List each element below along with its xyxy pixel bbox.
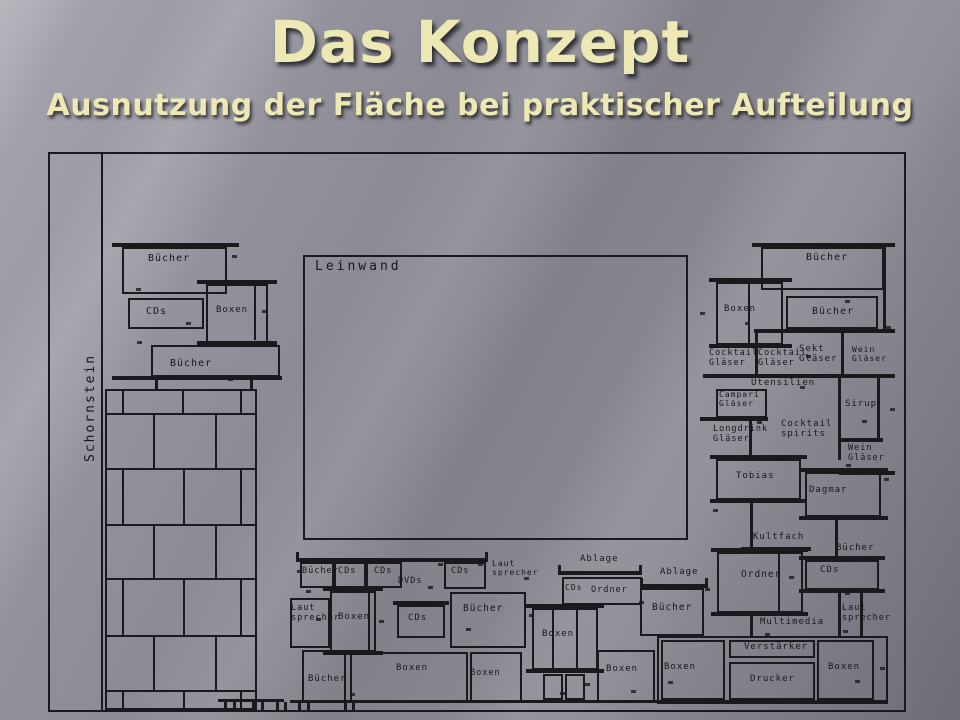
label-b-cher: Bücher — [170, 358, 212, 369]
label-multimedia: Multimedia — [760, 617, 824, 627]
label-boxen: Boxen — [396, 663, 428, 673]
flange — [711, 612, 808, 616]
cap — [705, 578, 708, 588]
foot — [344, 703, 347, 711]
label-b-cher: Bücher — [836, 543, 875, 553]
cap — [639, 565, 642, 575]
flange — [799, 516, 888, 520]
label-drucker: Drucker — [750, 674, 795, 684]
dim-tick — [137, 341, 142, 344]
brick-joint — [122, 389, 124, 413]
dim-tick — [846, 464, 851, 467]
foot — [298, 703, 301, 711]
dim-tick — [136, 288, 141, 291]
post — [750, 616, 753, 638]
shelf-bar — [296, 558, 488, 562]
post — [155, 377, 158, 389]
speaker-divider — [254, 286, 256, 340]
label-b-cher: Bücher — [806, 252, 848, 263]
leinwand-box — [303, 255, 688, 540]
brick-joint — [215, 524, 217, 578]
label-tobias: Tobias — [736, 471, 775, 481]
shelf-bar — [393, 601, 449, 605]
shelf-bar — [799, 556, 885, 560]
cap — [296, 552, 299, 562]
post — [877, 378, 880, 440]
wall-left-line — [101, 152, 103, 712]
post — [838, 593, 841, 636]
label-leinwand: Leinwand — [315, 260, 402, 275]
label-boxen: Boxen — [828, 662, 860, 672]
flange — [526, 669, 604, 673]
flange — [197, 280, 277, 284]
shelf-bar — [112, 243, 239, 247]
dim-tick — [232, 255, 237, 258]
speaker-divider — [576, 610, 578, 668]
label-ordner: Ordner — [741, 570, 781, 581]
foot — [276, 702, 279, 711]
label-ablage: Ablage — [580, 554, 619, 564]
dim-tick — [466, 628, 471, 631]
cap — [485, 552, 488, 562]
post — [250, 377, 253, 389]
dim-tick — [745, 322, 750, 325]
slide: Das Konzept Ausnutzung der Fläche bei pr… — [0, 0, 960, 720]
shelf-bar — [799, 589, 885, 593]
dim-tick — [843, 630, 848, 633]
label-dvds: DVDs — [398, 577, 422, 587]
brick-joint — [240, 468, 242, 524]
label-laut-sprecher: Laut sprecher — [492, 560, 539, 578]
brick-row-line — [105, 690, 257, 692]
label-cds: CDs — [374, 567, 392, 577]
brick-joint — [215, 635, 217, 690]
brick-joint — [183, 578, 185, 635]
label-cds: CDs — [146, 306, 167, 317]
brick-row-line — [105, 524, 257, 526]
brick-joint — [122, 578, 124, 635]
label-wein-gl-ser: Wein Gläser — [852, 346, 887, 364]
label-b-cher: Bücher — [652, 603, 692, 614]
flange — [799, 468, 888, 472]
tower-leg-1 — [543, 674, 563, 700]
dim-tick — [631, 690, 636, 693]
dim-tick — [765, 633, 770, 636]
foot — [284, 702, 287, 711]
dim-tick — [884, 478, 889, 481]
brick-joint — [183, 468, 185, 524]
label-utensilien: Utensilien — [751, 378, 815, 388]
foot — [307, 703, 310, 711]
label-laut-sprecher: Laut sprecher — [842, 604, 891, 623]
shelf-bar — [640, 584, 708, 588]
box-cds-r — [805, 560, 879, 590]
label-cds: CDs — [820, 565, 839, 575]
dim-tick — [862, 420, 867, 423]
dim-tick — [668, 681, 673, 684]
label-cds: CDs — [451, 567, 469, 577]
dim-tick — [713, 509, 718, 512]
dim-tick — [639, 601, 644, 604]
label-cds: CDs — [338, 567, 356, 577]
dim-tick — [306, 590, 311, 593]
label-b-cher: Bücher — [148, 253, 190, 264]
label-cds: CDs — [408, 613, 427, 623]
brick-joint — [240, 690, 242, 710]
label-cds: CDs — [565, 584, 582, 593]
foot — [352, 703, 355, 711]
shelf-bar — [558, 571, 642, 575]
brick-joint — [153, 413, 155, 468]
brick-joint — [183, 690, 185, 710]
label-verst-rker: Verstärker — [744, 642, 808, 652]
label-sekt-gl-ser: Sekt Gläser — [799, 344, 838, 364]
flange — [709, 278, 792, 282]
box-boxen-bottom-3 — [597, 650, 655, 702]
label-boxen: Boxen — [664, 662, 696, 672]
label-boxen: Boxen — [338, 612, 370, 622]
feet-bar — [290, 700, 888, 703]
dim-tick — [886, 326, 891, 329]
brick-joint — [122, 468, 124, 524]
label-b-cher: Bücher — [302, 567, 339, 577]
cap — [640, 578, 643, 588]
flange — [711, 548, 808, 552]
brick-joint — [153, 524, 155, 578]
label-cocktail-spirits: Cocktail spirits — [781, 419, 832, 439]
dim-tick — [855, 680, 860, 683]
dim-tick — [705, 588, 710, 591]
box-ordner-r — [717, 552, 803, 613]
label-longdrink-gl-ser: Longdrink Gläser — [713, 425, 768, 444]
post — [838, 378, 841, 460]
label-cocktail-gl-ser: Cocktail Gläser — [709, 349, 758, 368]
label-sirup: Sirup — [845, 399, 877, 409]
dim-tick — [478, 563, 483, 566]
brick-joint — [240, 389, 242, 413]
brick-joint — [182, 389, 184, 413]
dim-tick — [379, 620, 384, 623]
brick-joint — [240, 578, 242, 635]
shelf-bar — [752, 243, 895, 247]
flange — [710, 499, 807, 503]
flange — [323, 651, 383, 655]
label-ablage: Ablage — [660, 567, 699, 577]
label-boxen: Boxen — [724, 304, 756, 314]
label-boxen: Boxen — [542, 629, 574, 639]
box-buecher-mid-left — [450, 592, 526, 648]
dim-tick — [700, 312, 705, 315]
dim-tick — [845, 592, 850, 595]
label-laut-sprecher: Laut sprecher — [291, 604, 340, 623]
brick-row-line — [105, 578, 257, 580]
label-kultfach: Kultfach — [753, 532, 804, 542]
flange — [323, 587, 383, 591]
speaker-divider — [778, 554, 780, 611]
flange — [710, 455, 807, 459]
brick-joint — [122, 690, 124, 710]
dim-tick — [350, 693, 355, 696]
shelf-bar — [839, 438, 883, 442]
box-boxen-bottom-1 — [350, 652, 468, 702]
dim-tick — [560, 692, 565, 695]
shelf-bar — [754, 329, 895, 333]
dim-tick — [262, 310, 267, 313]
chimney-outline — [105, 389, 257, 710]
label-b-cher: Bücher — [463, 604, 503, 615]
label-boxen: Boxen — [470, 669, 501, 679]
brick-row-line — [105, 413, 257, 415]
dim-tick — [438, 563, 443, 566]
label-campari-gl-ser: Campari Gläser — [719, 391, 760, 409]
floorplan-drawing: SchornsteinLeinwandBücherCDsBoxenBücherB… — [0, 0, 960, 720]
dim-tick — [529, 614, 534, 617]
dim-tick — [890, 408, 895, 411]
label-ordner: Ordner — [591, 586, 628, 596]
brick-row-line — [105, 468, 257, 470]
label-wein-gl-ser: Wein Gläser — [848, 444, 885, 463]
label-dagmar: Dagmar — [809, 485, 848, 495]
shelf-bar — [112, 376, 282, 380]
dim-tick — [880, 667, 885, 670]
label-boxen: Boxen — [216, 305, 248, 315]
brick-row-line — [105, 635, 257, 637]
dim-tick — [585, 683, 590, 686]
cap — [558, 565, 561, 575]
brick-joint — [215, 413, 217, 468]
dim-tick — [789, 576, 794, 579]
dim-tick — [186, 322, 191, 325]
brick-joint — [153, 635, 155, 690]
tower-leg-2 — [565, 674, 585, 700]
post — [841, 329, 844, 376]
foot — [261, 702, 264, 711]
label-b-cher: Bücher — [308, 674, 347, 684]
label-boxen: Boxen — [606, 664, 638, 674]
flange — [197, 341, 277, 345]
dim-tick — [228, 378, 233, 381]
label-b-cher: Bücher — [812, 306, 854, 317]
dim-tick — [428, 586, 433, 589]
post — [883, 247, 886, 331]
label-schornstein: Schornstein — [84, 354, 99, 462]
dim-tick — [845, 300, 850, 303]
flange — [526, 604, 604, 608]
